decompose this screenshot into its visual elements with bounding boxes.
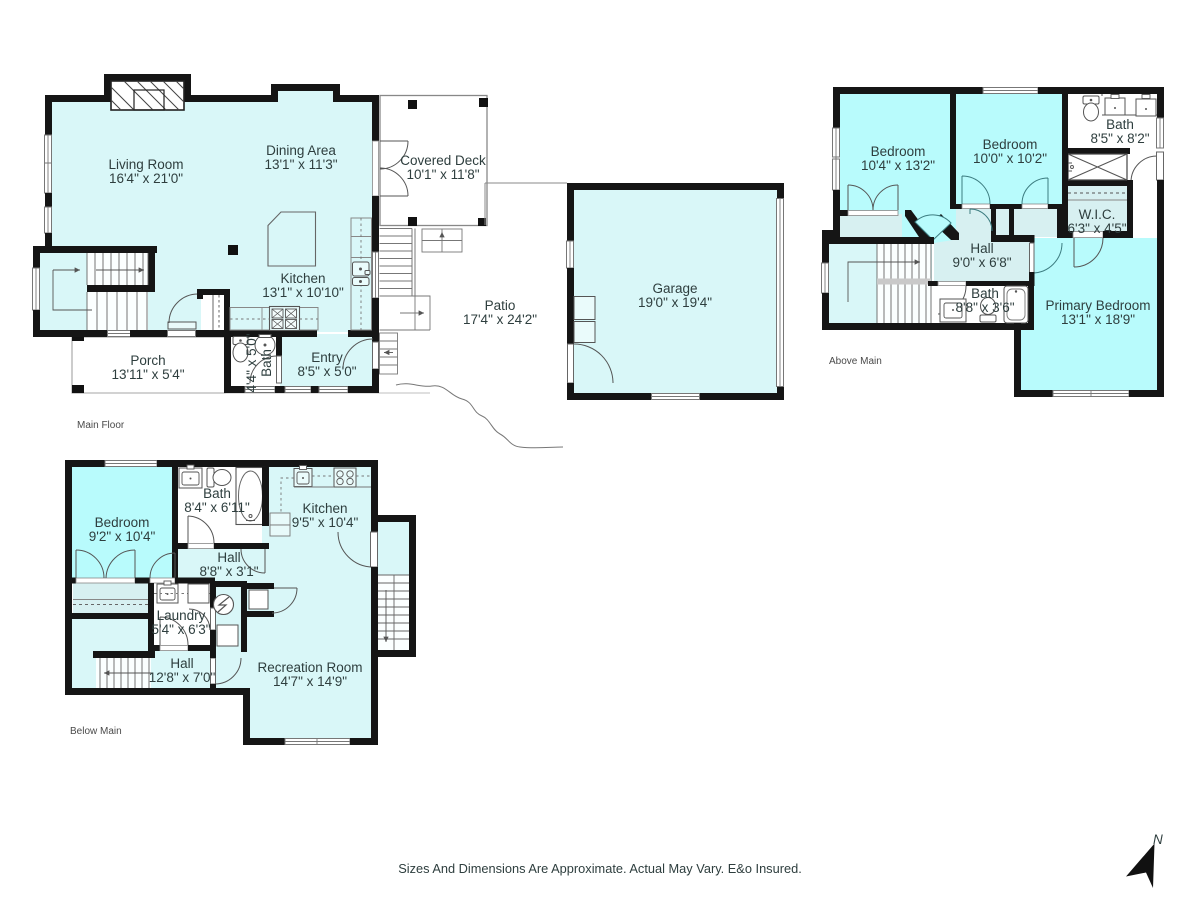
svg-text:Bath: Bath (971, 286, 999, 301)
svg-text:W.I.C.: W.I.C. (1079, 207, 1116, 222)
svg-text:9'2" x 10'4": 9'2" x 10'4" (89, 529, 156, 544)
svg-text:16'4" x 21'0": 16'4" x 21'0" (109, 171, 183, 186)
svg-text:10'4" x 13'2": 10'4" x 13'2" (861, 158, 935, 173)
svg-text:13'1" x 18'9": 13'1" x 18'9" (1061, 312, 1135, 327)
svg-text:5'4" x 6'3": 5'4" x 6'3" (151, 622, 210, 637)
svg-text:Below Main: Below Main (70, 726, 122, 737)
svg-text:8'8" x 3'6": 8'8" x 3'6" (955, 300, 1014, 315)
svg-text:10'0" x 10'2": 10'0" x 10'2" (973, 151, 1047, 166)
svg-text:Primary Bedroom: Primary Bedroom (1045, 298, 1150, 313)
svg-text:4'4" x 5'0": 4'4" x 5'0" (244, 333, 259, 392)
svg-text:Kitchen: Kitchen (280, 271, 325, 286)
svg-text:9'5" x 10'4": 9'5" x 10'4" (292, 515, 359, 530)
svg-text:Bedroom: Bedroom (95, 515, 150, 530)
svg-text:Bedroom: Bedroom (871, 144, 926, 159)
svg-text:Covered Deck: Covered Deck (400, 153, 486, 168)
svg-text:17'4" x 24'2": 17'4" x 24'2" (463, 312, 537, 327)
svg-text:Hall: Hall (217, 550, 240, 565)
svg-text:6'3" x 4'5": 6'3" x 4'5" (1067, 221, 1126, 236)
svg-text:N: N (1153, 832, 1163, 847)
svg-text:8'5" x 5'0": 8'5" x 5'0" (297, 364, 356, 379)
svg-text:Hall: Hall (970, 241, 993, 256)
svg-text:19'0" x 19'4": 19'0" x 19'4" (638, 295, 712, 310)
svg-text:Bath: Bath (259, 349, 274, 377)
svg-text:Above Main: Above Main (829, 356, 882, 367)
svg-text:Dining Area: Dining Area (266, 143, 336, 158)
svg-text:Patio: Patio (485, 298, 516, 313)
svg-text:Hall: Hall (170, 656, 193, 671)
svg-text:Kitchen: Kitchen (302, 501, 347, 516)
svg-text:8'5" x 8'2": 8'5" x 8'2" (1090, 131, 1149, 146)
svg-text:14'7" x 14'9": 14'7" x 14'9" (273, 674, 347, 689)
svg-text:Garage: Garage (652, 281, 697, 296)
svg-text:13'1" x 11'3": 13'1" x 11'3" (264, 157, 337, 172)
svg-text:Porch: Porch (130, 353, 165, 368)
svg-text:8'8" x 3'1": 8'8" x 3'1" (199, 564, 258, 579)
svg-text:13'11" x 5'4": 13'11" x 5'4" (111, 367, 184, 382)
svg-text:Laundry: Laundry (157, 608, 206, 623)
svg-text:Living Room: Living Room (108, 157, 183, 172)
svg-text:Recreation Room: Recreation Room (257, 660, 362, 675)
svg-text:Bath: Bath (203, 486, 231, 501)
svg-text:Main Floor: Main Floor (77, 420, 125, 431)
svg-text:12'8" x 7'0": 12'8" x 7'0" (149, 670, 216, 685)
svg-text:Bath: Bath (1106, 117, 1134, 132)
svg-text:9'0" x 6'8": 9'0" x 6'8" (952, 255, 1011, 270)
svg-text:Entry: Entry (311, 350, 343, 365)
svg-text:8'4" x 6'11": 8'4" x 6'11" (184, 500, 250, 515)
svg-text:10'1" x 11'8": 10'1" x 11'8" (406, 167, 479, 182)
svg-text:Bedroom: Bedroom (983, 137, 1038, 152)
svg-text:Sizes And Dimensions Are Appro: Sizes And Dimensions Are Approximate. Ac… (398, 861, 802, 876)
svg-text:13'1" x 10'10": 13'1" x 10'10" (262, 285, 344, 300)
